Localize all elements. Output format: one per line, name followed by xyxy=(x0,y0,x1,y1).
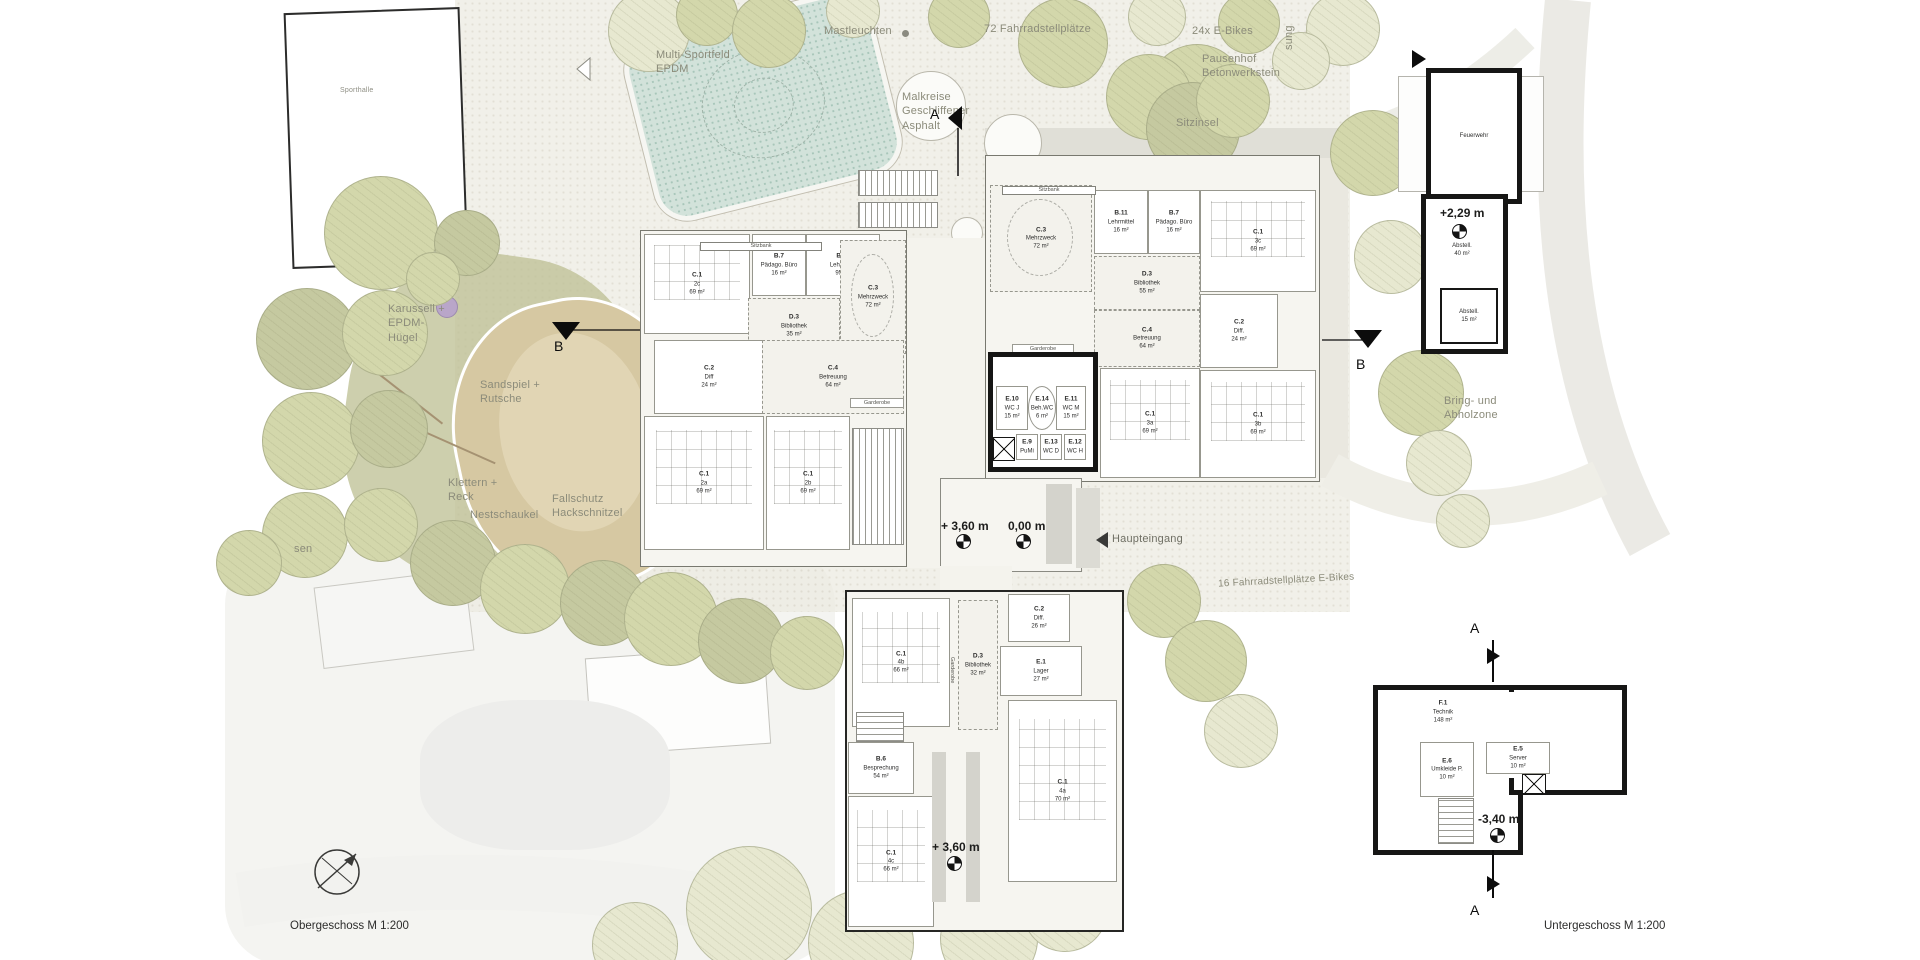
room-b6-besprechung: B.6Besprechung54 m² xyxy=(848,742,914,794)
garderobe-strip-vertical: Garderobe xyxy=(949,640,955,700)
section-letter-a-base-top: A xyxy=(1470,620,1479,636)
tree xyxy=(1272,32,1330,90)
level-south-wing: + 3,60 m xyxy=(932,840,980,854)
level-symbol xyxy=(1452,224,1467,239)
room-b11-east: B.11Lehrmittel16 m² xyxy=(1094,190,1148,254)
fire-station-garage: Feuerwehr xyxy=(1426,68,1522,204)
room-c1-3a: C.13a69 m² xyxy=(1100,368,1200,478)
south-ramp xyxy=(966,752,980,902)
sitzbank-bench: Sitzbank xyxy=(1002,186,1096,195)
room-wc-j: E.10WC J15 m² xyxy=(996,386,1028,430)
label-karussell: Karussell + EPDM- Hügel xyxy=(388,302,445,345)
tree xyxy=(1354,220,1428,294)
level-symbol xyxy=(1016,534,1031,549)
stairs-basement xyxy=(1438,798,1474,844)
tree xyxy=(216,530,282,596)
label-bring-abholzone: Bring- und Abholzone xyxy=(1444,394,1498,423)
room-d3-south: D.3Bibliothek32 m² xyxy=(958,600,998,730)
tree xyxy=(344,488,418,562)
room-abstell-15: Abstell.15 m² xyxy=(1440,288,1498,344)
label-72-fahrradstellplaetze: 72 Fahrradstellplätze xyxy=(984,22,1091,36)
outdoor-stairs-upper xyxy=(858,170,938,196)
pergola-band xyxy=(1320,158,1348,478)
site-plan-canvas: Sporthalle C.12c69 m² B.7Pädago. Büro16 … xyxy=(0,0,1920,960)
room-e6-umkleide: E.6Umkleide P.10 m² xyxy=(1420,742,1474,797)
room-c1-4b: C.14b66 m² xyxy=(852,598,950,727)
entrance-ramp xyxy=(1046,484,1072,564)
room-e1-lager: E.1Lager27 m² xyxy=(1000,646,1082,696)
label-sitzinsel: Sitzinsel xyxy=(1176,116,1219,130)
label-pausenhof: Pausenhof Betonwerkstein xyxy=(1202,52,1280,81)
stairs-south-wing xyxy=(856,712,904,742)
label-multisportfeld: Multi-Sportfeld EPDM xyxy=(656,48,730,77)
room-c1-2b: C.12b69 m² xyxy=(766,416,850,550)
section-letter-a-top: A xyxy=(930,106,939,122)
stairs-west-wing xyxy=(852,428,904,545)
room-c2-west: C.2Diff24 m² xyxy=(654,340,764,414)
tree xyxy=(1204,694,1278,768)
label-sandspiel: Sandspiel + Rutsche xyxy=(480,378,540,407)
elevator xyxy=(993,437,1015,461)
tree xyxy=(350,390,428,468)
room-beh-wc: E.14Beh.WC6 m² xyxy=(1028,386,1056,430)
fire-station-side-wing xyxy=(1398,76,1428,192)
tree xyxy=(770,616,844,690)
label-fallschutz: Fallschutz Hackschnitzel xyxy=(552,492,622,521)
room-c2-east: C.2Diff.24 m² xyxy=(1200,294,1278,368)
caption-untergeschoss: Untergeschoss M 1:200 xyxy=(1544,920,1665,932)
level-entry-zero: 0,00 m xyxy=(1008,519,1045,533)
room-c4-east: C.4Betreuung64 m² xyxy=(1094,310,1200,367)
room-wc-m: E.11WC M15 m² xyxy=(1056,386,1086,430)
room-c1-3b: C.13b69 m² xyxy=(1200,370,1316,478)
tree xyxy=(1436,494,1490,548)
room-c1-2a: C.12a69 m² xyxy=(644,416,764,550)
existing-area-blob xyxy=(420,700,670,850)
tree xyxy=(1378,350,1464,436)
label-24x-ebikes: 24x E-Bikes xyxy=(1192,24,1253,38)
level-symbol xyxy=(956,534,971,549)
room-f1-technik: F.1Technik148 m² xyxy=(1433,700,1453,725)
tree xyxy=(1165,620,1247,702)
tree xyxy=(480,544,570,634)
room-c1-4a: C.14a70 m² xyxy=(1008,700,1117,882)
room-c2-south: C.2Diff.26 m² xyxy=(1008,594,1070,642)
level-symbol xyxy=(1490,828,1505,843)
label-haupteingang: Haupteingang xyxy=(1112,532,1183,546)
room-c3-east: C.3Mehrzweck72 m² xyxy=(990,185,1092,292)
sporthalle-label: Sporthalle xyxy=(340,86,374,95)
label-nestschaukel: Nestschaukel xyxy=(470,508,538,522)
level-basement: -3,40 m xyxy=(1478,812,1519,826)
tree xyxy=(1018,0,1108,88)
south-ramp xyxy=(932,752,946,902)
room-wc-d: E.13WC D xyxy=(1040,434,1062,460)
room-abstell-40: Abstell.40 m² xyxy=(1452,242,1472,258)
tree xyxy=(686,846,812,960)
label-klettern: Klettern + Reck xyxy=(448,476,497,505)
label-anlieferung-partial: sung xyxy=(1282,6,1296,50)
caption-obergeschoss: Obergeschoss M 1:200 xyxy=(290,920,409,932)
level-fire: +2,29 m xyxy=(1440,206,1484,220)
section-letter-b-right: B xyxy=(1356,356,1365,372)
level-entry-upper: + 3,60 m xyxy=(941,519,989,533)
sitzbank-bench: Sitzbank xyxy=(700,242,822,251)
label-mastleuchten: Mastleuchten xyxy=(824,24,892,38)
entrance-canopy xyxy=(1076,488,1100,568)
tree xyxy=(406,252,460,306)
room-wc-h: E.12WC H xyxy=(1064,434,1086,460)
label-rasen-partial: sen xyxy=(294,542,312,556)
section-letter-b-left: B xyxy=(554,338,563,354)
elevator xyxy=(1522,774,1546,794)
section-letter-a-base-bottom: A xyxy=(1470,902,1479,918)
room-b7-east: B.7Pädago. Büro16 m² xyxy=(1148,190,1200,254)
tree xyxy=(1406,430,1472,496)
room-c1-4c: C.14c66 m² xyxy=(848,796,934,927)
garderobe-strip: Garderobe xyxy=(850,398,904,408)
tree xyxy=(262,392,360,490)
room-d3-east: D.3Bibliothek55 m² xyxy=(1094,256,1200,310)
outdoor-stairs-lower xyxy=(858,202,938,228)
room-c3-west: C.3Mehrzweck72 m² xyxy=(840,240,906,354)
level-symbol xyxy=(947,856,962,871)
room-pumi: E.9PuMi xyxy=(1016,434,1038,460)
room-c1-3c: C.13c69 m² xyxy=(1200,190,1316,292)
mast-light-icon xyxy=(902,30,909,37)
room-e5-server: E.5Server10 m² xyxy=(1486,742,1550,774)
